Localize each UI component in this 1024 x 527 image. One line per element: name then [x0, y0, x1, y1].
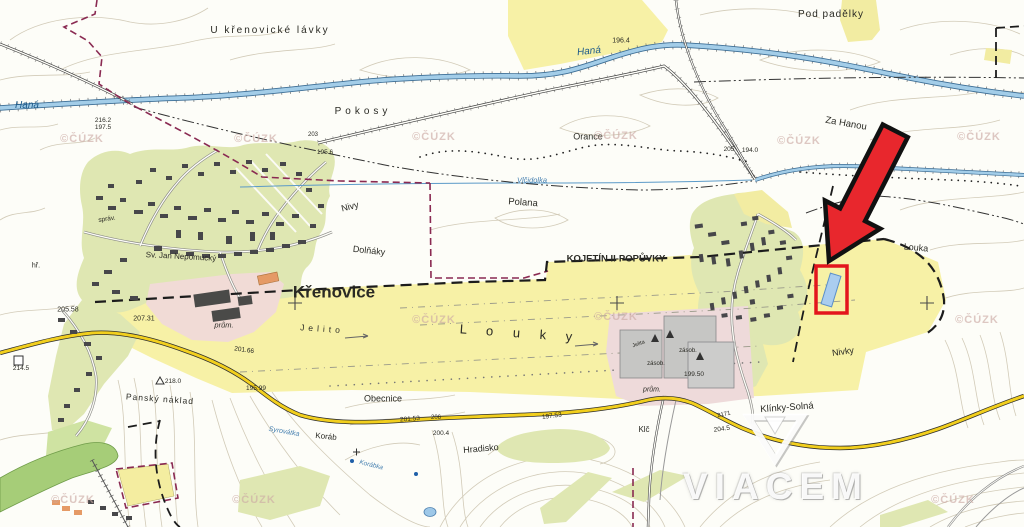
- topo-map-canvas: [0, 0, 1024, 527]
- map-screenshot: U křenovické lávkyHanáPokosyHaná196.4Pod…: [0, 0, 1024, 527]
- field-pod-padelky: [840, 0, 880, 42]
